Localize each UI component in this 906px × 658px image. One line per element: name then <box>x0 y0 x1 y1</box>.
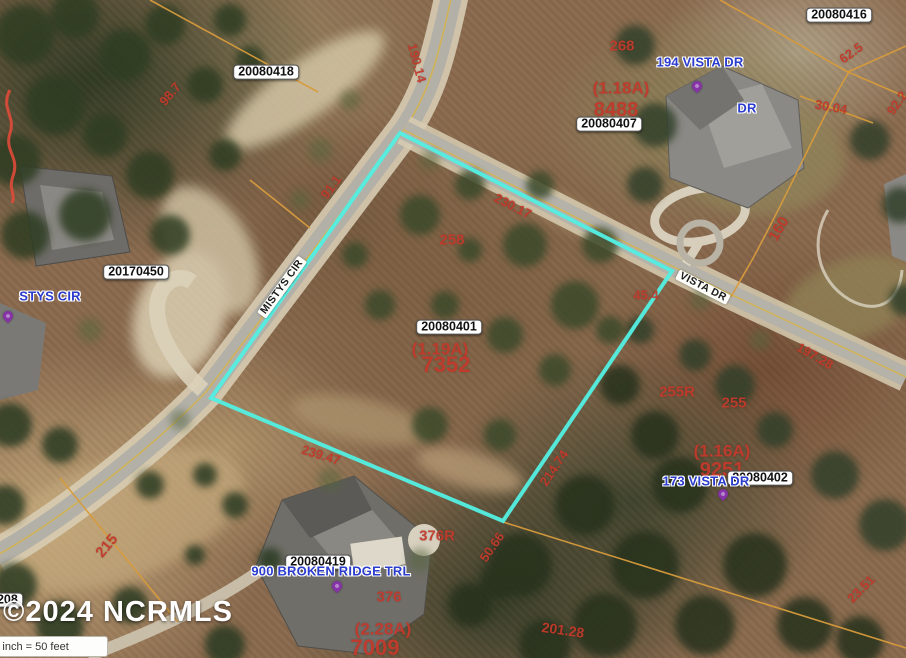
dimension-label: 239.47 <box>300 443 342 467</box>
address-label: 173 VISTA DR <box>663 474 750 487</box>
dimension-label: 197.28 <box>794 340 835 371</box>
dimension-label: 215 <box>93 531 121 560</box>
scale-bar: 1 inch = 50 feet <box>0 636 108 657</box>
map-canvas[interactable]: 190.1498.7268(1.18A)848830.0462.592.2160… <box>0 0 906 658</box>
dimension-label: 376R <box>419 528 455 543</box>
dimension-label: 7009 <box>351 637 400 658</box>
address-label: 194 VISTA DR <box>657 55 744 68</box>
parcel-id-label: 20080401 <box>416 320 482 335</box>
address-label: STYS CIR <box>19 289 81 302</box>
dimension-label: 160 <box>766 214 792 243</box>
dimension-label: 268 <box>609 38 634 53</box>
road-label: VISTA DR <box>675 269 731 304</box>
road-label: MISTYS CIR <box>257 256 307 319</box>
dimension-label: 30.04 <box>814 98 848 117</box>
dimension-label: 230.17 <box>492 191 533 221</box>
map-pin-icon <box>1 309 15 323</box>
dimension-label: 50.66 <box>477 530 507 564</box>
map-pin-icon <box>690 79 704 93</box>
parcel-id-label: 20080416 <box>806 8 872 23</box>
dimension-label: 91.1 <box>318 173 344 201</box>
annotation-layer: 190.1498.7268(1.18A)848830.0462.592.2160… <box>0 0 906 658</box>
map-pin-icon <box>716 487 730 501</box>
dimension-label: 23.51 <box>845 573 877 605</box>
dimension-label: 45.4 <box>633 288 658 301</box>
scale-bar-label: 1 inch = 50 feet <box>0 641 69 653</box>
dimension-label: 98.7 <box>157 80 183 108</box>
address-label: DR <box>737 101 756 114</box>
copyright-watermark: ©2024 NCRMLS <box>3 596 233 629</box>
dimension-label: 376 <box>376 589 401 604</box>
dimension-label: 201.28 <box>541 620 585 640</box>
dimension-label: 255 <box>721 395 746 410</box>
dimension-label: (1.18A) <box>593 79 650 96</box>
dimension-label: 190.14 <box>405 42 428 84</box>
dimension-label: 255R <box>659 384 695 399</box>
parcel-id-label: 20080418 <box>233 65 299 80</box>
dimension-label: 7352 <box>422 354 471 376</box>
dimension-label: 92.2 <box>884 89 906 117</box>
parcel-id-label: 20080407 <box>576 117 642 132</box>
dimension-label: 62.5 <box>837 40 865 66</box>
address-label: 900 BROKEN RIDGE TRL <box>251 564 410 577</box>
parcel-id-label: 20170450 <box>103 265 169 280</box>
dimension-label: 214.74 <box>537 448 570 488</box>
map-pin-icon <box>330 579 344 593</box>
dimension-label: 258 <box>439 232 464 247</box>
dimension-label: (1.16A) <box>694 442 751 459</box>
